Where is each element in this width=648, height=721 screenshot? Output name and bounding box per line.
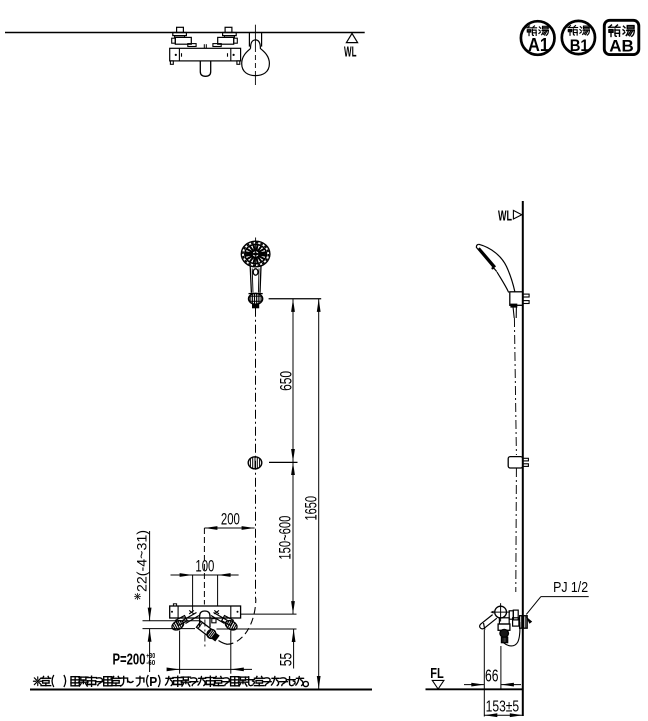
svg-text:P=200: P=200: [113, 651, 146, 668]
svg-text:A1: A1: [528, 35, 549, 55]
svg-text:-60: -60: [146, 658, 155, 667]
svg-text:100: 100: [195, 557, 214, 575]
svg-text:200: 200: [221, 510, 240, 528]
svg-text:55: 55: [278, 653, 296, 667]
svg-text:B1: B1: [570, 37, 589, 55]
svg-text:PJ 1/2: PJ 1/2: [553, 580, 588, 596]
svg-text:AB: AB: [609, 38, 634, 56]
svg-text:153±5: 153±5: [486, 699, 520, 716]
svg-text:66: 66: [485, 665, 499, 685]
svg-text:P: P: [149, 675, 157, 689]
svg-text:WL: WL: [344, 43, 357, 60]
svg-text:WL: WL: [498, 209, 512, 225]
svg-text:22(-4~31): 22(-4~31): [134, 530, 150, 592]
svg-text:FL: FL: [430, 666, 444, 682]
svg-text:150~600: 150~600: [277, 516, 295, 560]
svg-text:1650: 1650: [302, 496, 320, 521]
svg-text:650: 650: [277, 371, 295, 391]
